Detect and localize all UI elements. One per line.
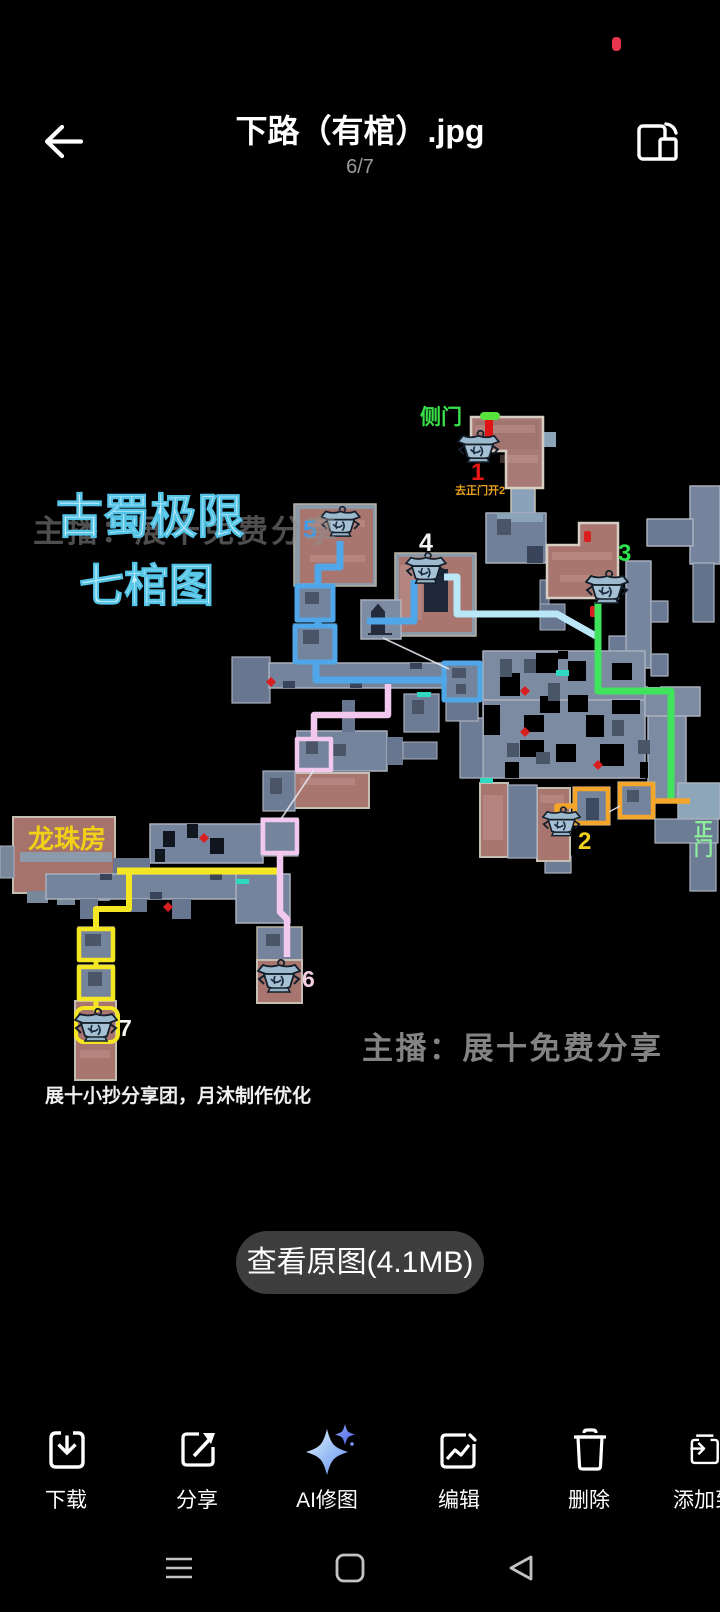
svg-text:正: 正 (694, 820, 713, 841)
svg-text:龙珠房: 龙珠房 (28, 824, 106, 854)
svg-text:3: 3 (618, 540, 631, 567)
svg-text:6: 6 (302, 966, 315, 992)
svg-text:侧门: 侧门 (420, 405, 462, 429)
svg-text:去正门开2: 去正门开2 (455, 483, 505, 497)
svg-text:4: 4 (419, 529, 433, 557)
svg-text:7: 7 (119, 1015, 132, 1041)
svg-text:2: 2 (578, 828, 591, 855)
svg-text:门: 门 (694, 837, 713, 860)
svg-text:1: 1 (471, 459, 484, 486)
